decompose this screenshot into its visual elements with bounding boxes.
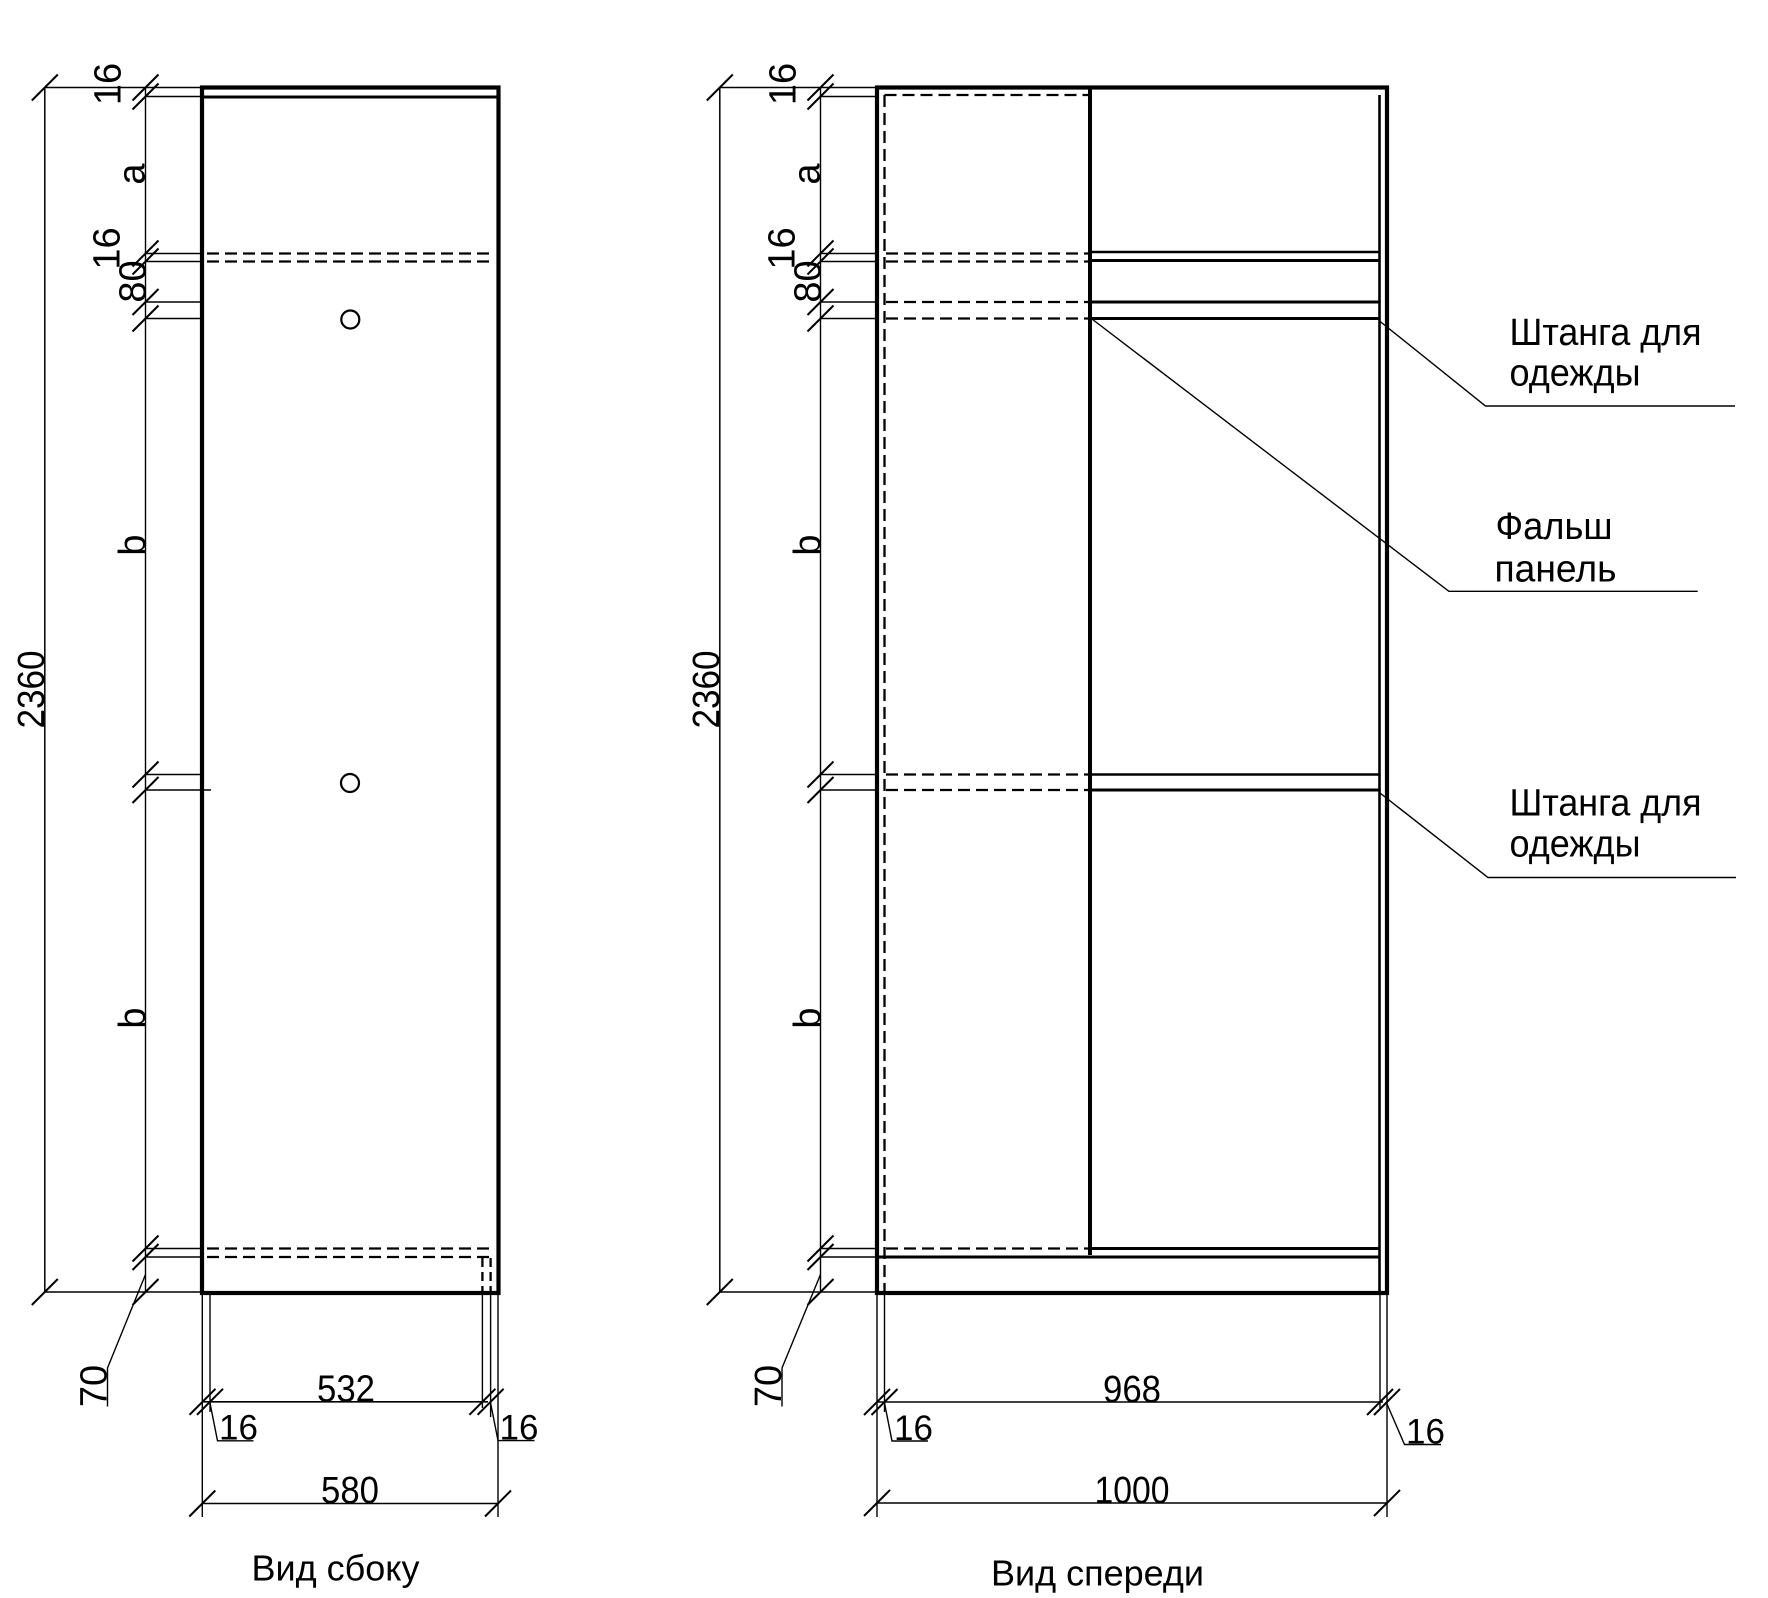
svg-text:2360: 2360: [11, 651, 53, 729]
svg-text:b: b: [112, 534, 154, 555]
svg-text:16: 16: [500, 1409, 539, 1448]
svg-text:Фальш: Фальш: [1496, 506, 1613, 548]
svg-text:Вид сбоку: Вид сбоку: [252, 1548, 420, 1589]
svg-text:70: 70: [748, 1365, 790, 1407]
svg-text:одежды: одежды: [1510, 353, 1641, 395]
svg-text:a: a: [787, 163, 829, 185]
svg-text:80: 80: [788, 260, 830, 302]
svg-text:Штанга для: Штанга для: [1510, 312, 1702, 354]
svg-text:16: 16: [88, 63, 130, 105]
svg-text:968: 968: [1103, 1369, 1161, 1411]
svg-text:16: 16: [219, 1409, 258, 1448]
svg-text:80: 80: [113, 260, 155, 302]
svg-text:2360: 2360: [686, 651, 728, 729]
svg-text:Вид спереди: Вид спереди: [991, 1553, 1204, 1594]
svg-text:b: b: [112, 1007, 154, 1028]
svg-text:b: b: [787, 1007, 829, 1028]
svg-text:a: a: [112, 163, 154, 185]
svg-text:одежды: одежды: [1510, 823, 1641, 865]
svg-text:16: 16: [894, 1409, 933, 1448]
svg-text:70: 70: [74, 1365, 116, 1407]
svg-text:16: 16: [1406, 1413, 1445, 1452]
svg-text:532: 532: [317, 1369, 375, 1411]
svg-text:16: 16: [763, 63, 805, 105]
svg-text:580: 580: [321, 1470, 379, 1512]
svg-text:Штанга для: Штанга для: [1510, 783, 1702, 825]
svg-text:b: b: [787, 534, 829, 555]
svg-text:панель: панель: [1495, 549, 1617, 591]
svg-text:1000: 1000: [1095, 1470, 1170, 1512]
